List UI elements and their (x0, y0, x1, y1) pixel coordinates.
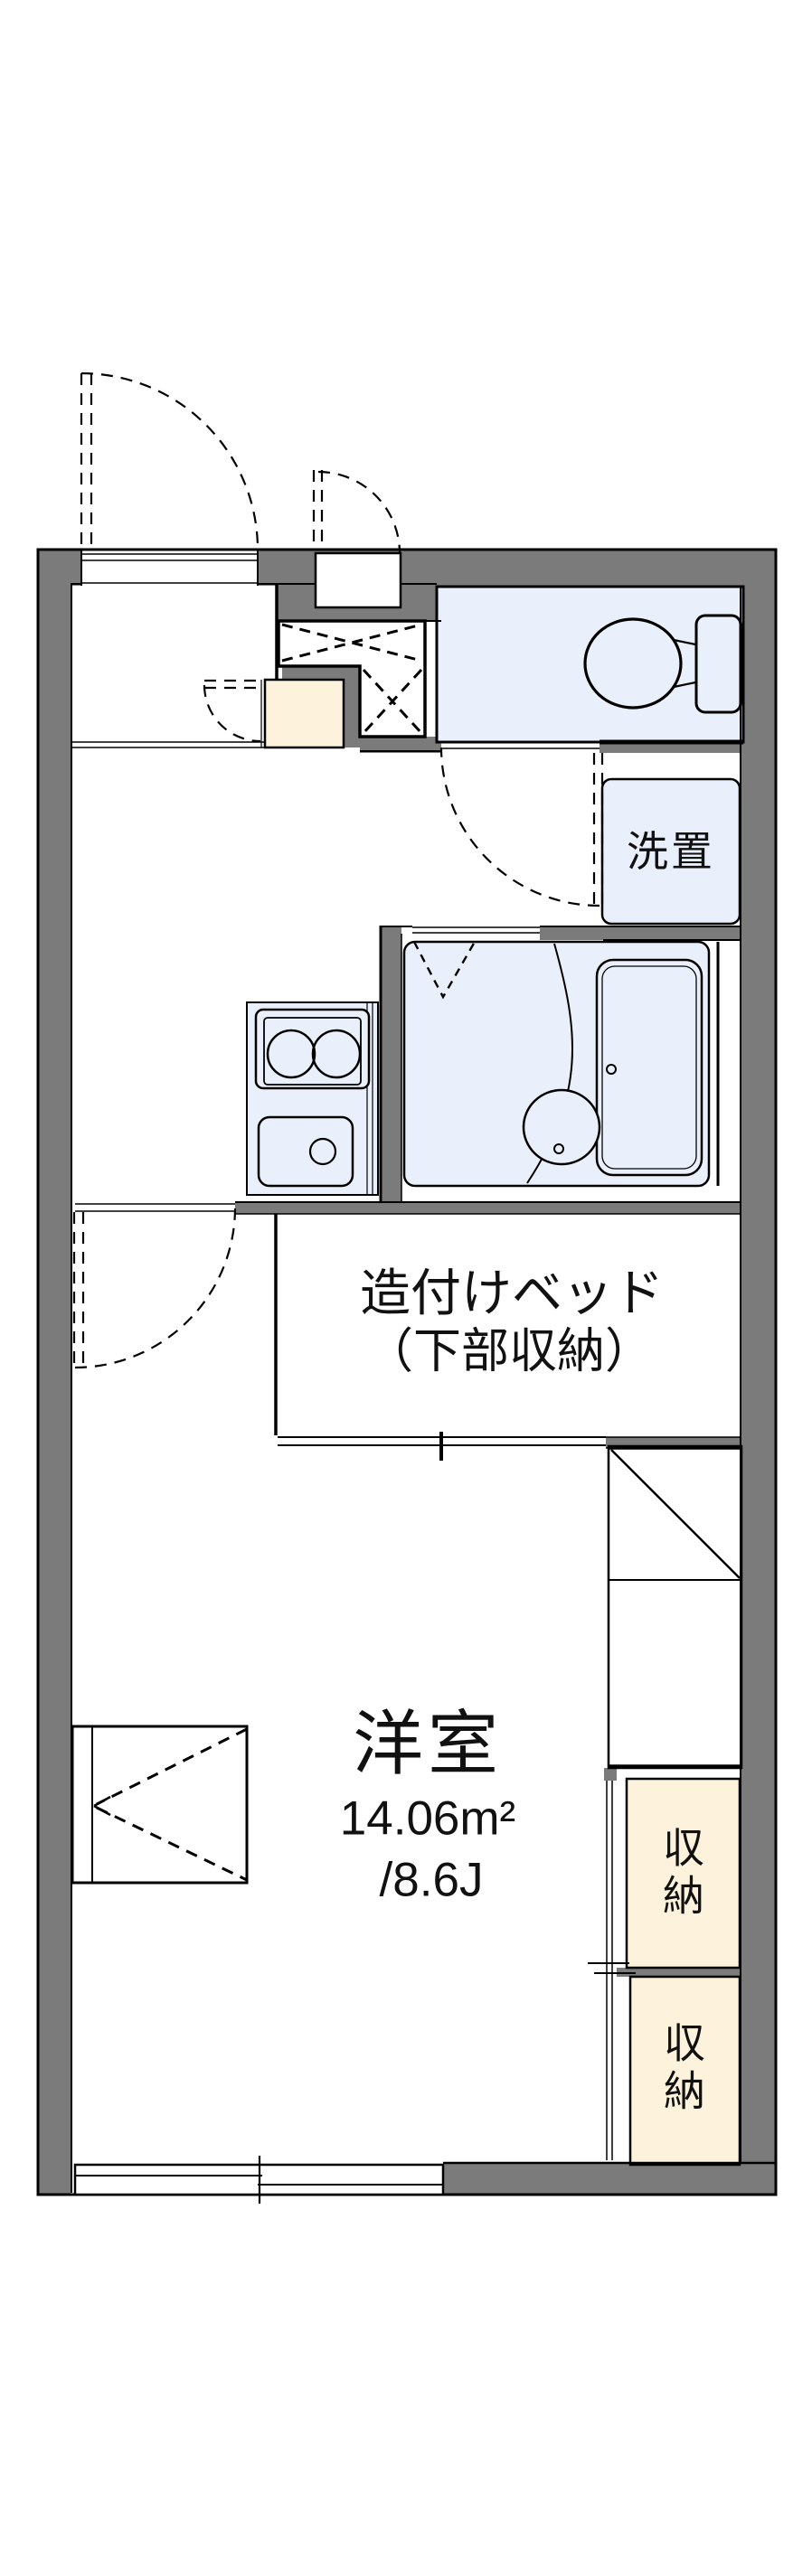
room-area-tatami: /8.6J (380, 1857, 484, 1904)
bathroom (381, 926, 741, 1202)
bay-window-box (72, 1726, 247, 1883)
wall-shaft-top (282, 666, 360, 681)
door-swings (74, 373, 602, 1368)
toilet-icon (585, 616, 741, 712)
wall-bottom-right (443, 2163, 776, 2195)
washbasin-icon (524, 1090, 600, 1164)
door-swing-second (314, 470, 400, 553)
laundry-label: 洗置 (627, 831, 715, 872)
door-swing-room (74, 1208, 235, 1368)
door-swing-entry (81, 373, 258, 550)
entry-doorway-opening (81, 550, 258, 586)
storage-lower-label: 収納 (663, 2020, 706, 2117)
kitchen (247, 1002, 378, 1195)
toilet-room (437, 587, 743, 748)
closet (609, 1446, 741, 1768)
wall-right (741, 550, 776, 2195)
bathtub-icon (597, 960, 702, 1175)
window-bottom (75, 2156, 443, 2204)
wall-shaft-side (344, 680, 360, 747)
wall-bath-left (381, 926, 401, 1211)
room-name-label: 洋室 (353, 1708, 503, 1779)
storage-upper-label: 収納 (662, 1825, 705, 1922)
second-doorway-recess (316, 553, 401, 607)
door-swing-interior (204, 681, 260, 741)
room-area-sqm: 14.06m² (340, 1795, 515, 1843)
wall-toilet-bottom (600, 743, 741, 753)
stove-icon (256, 1010, 369, 1088)
wall-closet-stub (604, 1768, 617, 1781)
floorplan-page: 洗置 造付けベッド （下部収納） 洋室 14.06m² /8.6J 収納 収納 (0, 0, 812, 2576)
wall-mid (235, 1202, 741, 1214)
sink-icon (259, 1117, 353, 1186)
door-swing-toilet (441, 747, 602, 908)
bed-label-line2: （下部収納） (365, 1328, 653, 1376)
wall-left (38, 550, 71, 2195)
bed-label-line1: 造付けベッド (360, 1268, 664, 1319)
wall-bath-top (540, 926, 741, 940)
entry-step (261, 680, 344, 747)
